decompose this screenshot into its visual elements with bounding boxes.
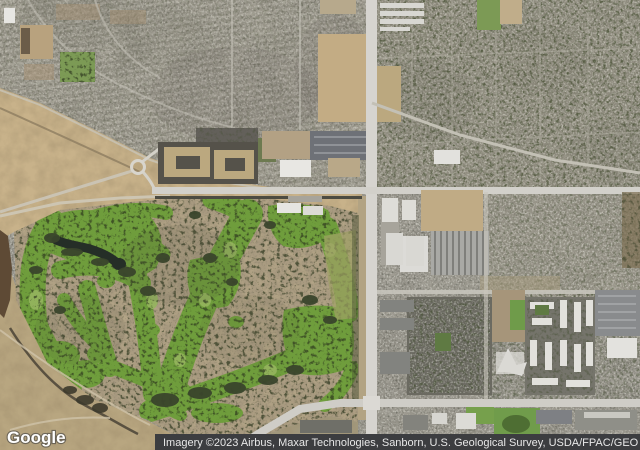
svg-text:Imagery ©2023 Airbus, Maxar Te: Imagery ©2023 Airbus, Maxar Technologies… xyxy=(163,437,639,449)
svg-text:Google: Google xyxy=(7,428,66,447)
